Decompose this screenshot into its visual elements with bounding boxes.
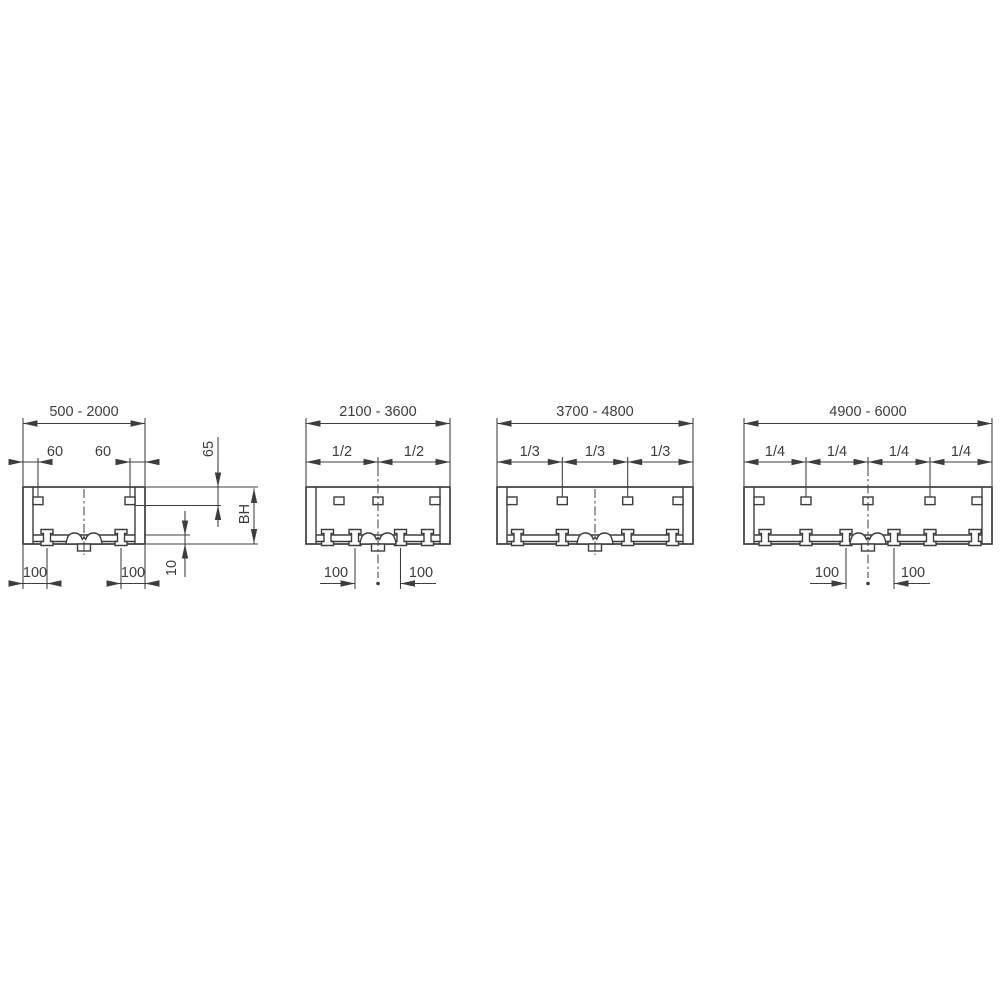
wall-bracket	[430, 497, 440, 505]
fraction-label: 1/2	[332, 444, 352, 460]
pipe-clamp	[512, 530, 524, 546]
build-height-label: BH	[237, 504, 253, 524]
wall-bracket	[673, 497, 683, 505]
length-dimension: 500 - 2000	[23, 404, 145, 486]
fraction-label: 1/4	[889, 444, 909, 460]
length-range-label: 500 - 2000	[49, 404, 118, 420]
clamp-offset-right-label: 100	[901, 565, 925, 581]
pipe-clamp	[800, 530, 812, 546]
pipe-clamp	[759, 530, 771, 546]
clamp-offset-right-label: 100	[121, 565, 145, 581]
fraction-label: 1/4	[765, 444, 785, 460]
panel-500-2000: 500 - 2000 60 60 65 BH 10	[9, 404, 258, 589]
center-mark	[376, 582, 380, 586]
pipe-clamp	[667, 530, 679, 546]
fraction-label: 1/3	[650, 444, 670, 460]
fraction-label: 1/4	[951, 444, 971, 460]
fraction-label: 1/2	[404, 444, 424, 460]
wall-bracket	[334, 497, 344, 505]
wall-bracket	[801, 497, 811, 505]
pipe-clamp	[924, 530, 936, 546]
technical-diagram: 500 - 2000 60 60 65 BH 10	[0, 0, 1000, 1000]
pipe-clamp	[888, 530, 900, 546]
height-top-label: 65	[201, 441, 217, 457]
mounting-length-drawing: 500 - 2000 60 60 65 BH 10	[0, 0, 1000, 1000]
wall-bracket	[557, 497, 567, 505]
length-range-label: 4900 - 6000	[829, 404, 906, 420]
wall-bracket	[33, 497, 43, 505]
panel-2100-3600: 2100 - 3600 1/2 1/2 100 100	[306, 404, 450, 589]
clamp-offset-left-label: 100	[815, 565, 839, 581]
fraction-label: 1/4	[827, 444, 847, 460]
clamp-offset-left-label: 100	[23, 565, 47, 581]
clamp-offset-dimensions: 100 100	[810, 548, 930, 589]
center-mark	[866, 582, 870, 586]
offset-left-label: 60	[47, 444, 63, 460]
panel-3700-4800: 3700 - 4800 1/3 1/3 1/3	[497, 404, 693, 555]
pipe-clamp	[422, 530, 434, 546]
offset-right-label: 60	[95, 444, 111, 460]
pipe-clamp	[115, 530, 127, 546]
pipe-clamp	[322, 530, 334, 546]
clamp-offset-right-label: 100	[409, 565, 433, 581]
pipe-clamp	[556, 530, 568, 546]
fraction-dimensions: 1/2 1/2	[306, 444, 450, 467]
wall-bracket	[507, 497, 517, 505]
pipe-clamp	[41, 530, 53, 546]
pipe-clamp	[622, 530, 634, 546]
wall-bracket	[925, 497, 935, 505]
length-range-label: 2100 - 3600	[339, 404, 416, 420]
wall-bracket	[623, 497, 633, 505]
clamp-offset-left-label: 100	[324, 565, 348, 581]
wall-bracket	[125, 497, 135, 505]
fraction-label: 1/3	[585, 444, 605, 460]
radiator-body	[497, 487, 693, 555]
wall-bracket	[972, 497, 982, 505]
radiator-body	[744, 467, 992, 585]
height-bottom-label: 10	[164, 560, 180, 576]
fraction-label: 1/3	[520, 444, 540, 460]
wall-bracket	[754, 497, 764, 505]
pipe-clamp	[969, 530, 981, 546]
length-range-label: 3700 - 4800	[556, 404, 633, 420]
height-dimensions: 65 BH 10	[135, 437, 258, 577]
panel-4900-6000: 4900 - 6000 1/4 1/4 1/4 1/4 100 100	[744, 404, 992, 589]
pipe-clamp	[349, 530, 361, 546]
radiator-body	[23, 487, 145, 555]
